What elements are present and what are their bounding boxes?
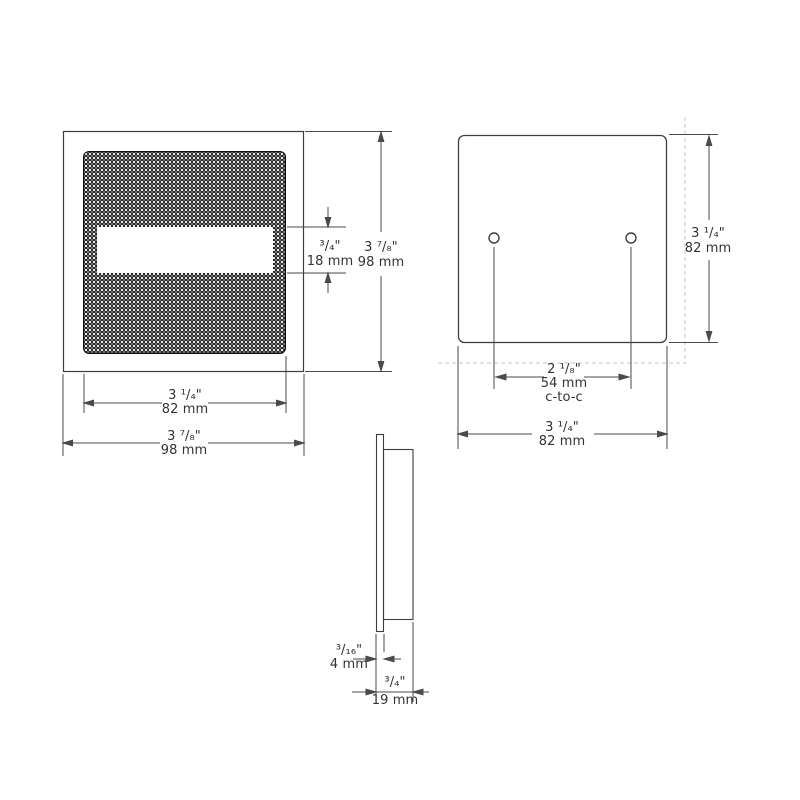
front-view-faceplate-outline [64, 132, 304, 372]
arrowhead-left [496, 374, 506, 380]
back-view-dashed-reference [438, 117, 686, 363]
arrowhead-left [63, 440, 73, 446]
dim-back-height: 3 ¹/₄" 82 mm [673, 226, 743, 256]
back-view-mounting-hole-right [626, 233, 636, 243]
side-view-faceplate-outline [377, 435, 384, 632]
dim-metric-value: 82 mm [527, 435, 597, 449]
dim-front-overall-height: 3 ⁷/₈" 98 mm [346, 240, 416, 270]
arrowhead-up [378, 132, 384, 142]
dim-metric-value: 4 mm [314, 658, 384, 672]
arrowhead-down [325, 218, 331, 228]
dim-metric-value: 19 mm [360, 694, 430, 708]
dim-back-hole-spacing: 2 ¹/₈" 54 mm c-to-c [529, 363, 599, 405]
arrowhead-right [619, 374, 629, 380]
arrowhead-up [706, 136, 712, 146]
arrowhead-right [277, 400, 287, 406]
dim-front-lens-width: 3 ¹/₄" 82 mm [150, 389, 220, 417]
arrowhead-left [458, 431, 468, 437]
dim-front-overall-width: 3 ⁷/₈" 98 mm [149, 430, 219, 458]
back-view-mounting-hole-left [489, 233, 499, 243]
dim-imperial-value: ³/₄" [360, 676, 430, 690]
dim-metric-value: 98 mm [346, 255, 416, 270]
dim-metric-value: 82 mm [673, 241, 743, 256]
dim-side-overall-depth: ³/₄" 19 mm [360, 676, 430, 708]
dim-imperial-value: 3 ¹/₄" [673, 226, 743, 241]
dim-imperial-value: ³/₁₆" [314, 644, 384, 658]
dim-metric-value: 54 mm [529, 377, 599, 391]
arrowhead-up [325, 273, 331, 283]
dim-metric-value: 82 mm [150, 403, 220, 417]
dim-imperial-value: 3 ⁷/₈" [346, 240, 416, 255]
arrowhead-left [84, 400, 94, 406]
arrowhead-right [295, 440, 305, 446]
dim-side-faceplate-thickness: ³/₁₆" 4 mm [314, 644, 384, 672]
dim-imperial-value: 3 ¹/₄" [527, 421, 597, 435]
dim-imperial-value: 2 ¹/₈" [529, 363, 599, 377]
dim-back-width: 3 ¹/₄" 82 mm [527, 421, 597, 449]
dim-imperial-value: 3 ⁷/₈" [149, 430, 219, 444]
arrowhead-down [706, 332, 712, 342]
arrowhead-down [378, 362, 384, 372]
dim-note-c-to-c: c-to-c [529, 391, 599, 405]
side-view-body-outline [384, 450, 414, 620]
dim-imperial-value: 3 ¹/₄" [150, 389, 220, 403]
dim-metric-value: 98 mm [149, 444, 219, 458]
arrowhead-right [658, 431, 668, 437]
arrowhead-left [384, 656, 394, 662]
technical-drawing-canvas: ³/₄" 18 mm 3 ⁷/₈" 98 mm 3 ¹/₄" 82 mm 3 ⁷… [0, 0, 800, 800]
